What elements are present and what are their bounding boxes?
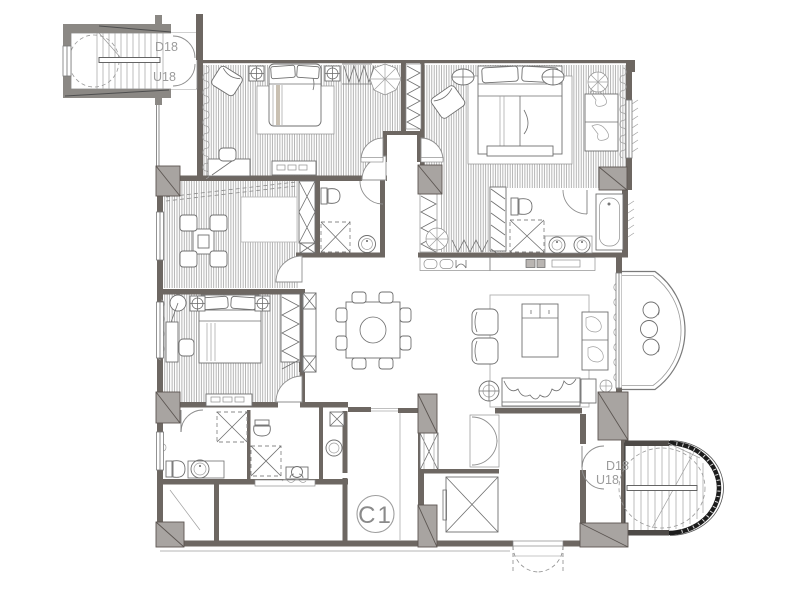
svg-text:D18: D18	[155, 40, 178, 54]
svg-text:U18: U18	[596, 473, 619, 487]
svg-text:D18: D18	[606, 459, 629, 473]
svg-text:U18: U18	[153, 70, 176, 84]
svg-text:C1: C1	[358, 502, 393, 529]
